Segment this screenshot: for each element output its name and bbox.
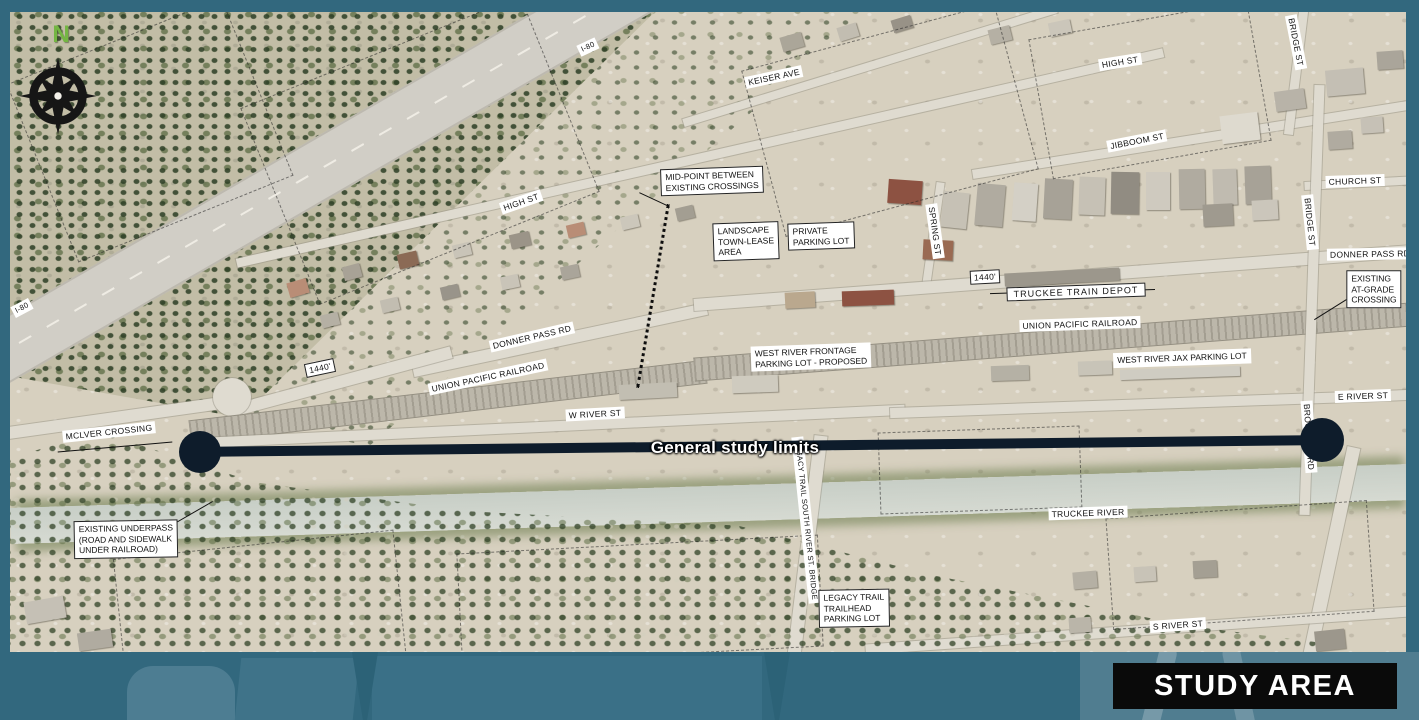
study-area-badge-label: STUDY AREA [1154,670,1356,703]
callout-line: PARKING LOT [793,235,850,247]
building [1111,172,1140,214]
building [1360,116,1383,133]
building [785,291,816,309]
parcel-outline [456,535,823,666]
study-area-map: I-80 I-80 KEISER AVE HIGH ST HIGH ST BRI… [0,0,1419,720]
building [380,297,400,314]
building [732,375,779,394]
footer-shape [235,658,360,720]
building [1120,366,1240,380]
frame-right [1406,0,1419,720]
building [940,191,970,230]
building [1179,169,1206,209]
compass-rose-icon [16,56,100,136]
callout-line: CROSSING [1351,294,1396,305]
street-label-e-river-st: E RIVER ST [1335,389,1392,403]
building [1244,166,1271,205]
building [440,284,460,301]
study-limit-endpoint-east [1300,418,1344,462]
north-label: N [52,21,69,49]
study-area-badge: STUDY AREA [1113,663,1397,709]
building [1376,50,1403,70]
measurement-1440-east: 1440' [970,269,1001,285]
street-label-church-st: CHURCH ST [1325,174,1384,188]
callout-line: AREA [718,245,774,257]
callout-line: LEGACY TRAIL [823,592,884,604]
building [1212,169,1237,206]
building [1274,88,1306,112]
building [77,629,113,652]
callout-line: PARKING LOT [824,613,885,625]
building [836,22,859,41]
parcel-outline [1105,500,1374,630]
footer-shape [127,666,235,720]
building [842,290,894,307]
building [779,32,804,52]
callout-legacy-trail-trailhead: LEGACY TRAIL TRAILHEAD PARKING LOT [818,589,889,628]
building [23,596,66,625]
callout-landscape-town-lease: LANDSCAPE TOWN-LEASE AREA [712,221,779,261]
building [286,278,309,298]
east-river-street-road [890,390,1410,418]
callout-private-parking-lot: PRIVATE PARKING LOT [787,221,854,250]
building [566,222,586,239]
study-limit-endpoint-west [179,431,221,473]
callout-line: WEST RIVER JAX PARKING LOT [1117,350,1247,365]
footer-shape [372,656,762,720]
footer-band: STUDY AREA [0,652,1419,720]
callout-line: EXISTING [1351,273,1396,284]
building [320,312,341,329]
callout-line: AT-GRADE [1351,284,1396,295]
building [974,183,1006,227]
building [1012,182,1039,222]
callout-line: TOWN-LEASE [718,235,774,247]
building [500,274,520,290]
building [1146,172,1170,210]
callout-existing-underpass: EXISTING UNDERPASS (ROAD AND SIDEWALK UN… [74,519,179,558]
building [619,382,678,400]
study-limits-label: General study limits [651,438,820,458]
building [1072,570,1097,589]
building [991,365,1030,381]
footer-shape [764,652,790,720]
frame-left [0,0,10,720]
callout-line: UNDER RAILROAD) [79,543,173,555]
building [1069,617,1092,633]
building [1327,130,1352,150]
building [509,231,532,249]
building [1325,67,1365,96]
frame-top [0,0,1419,12]
building [1078,177,1105,216]
building [620,214,640,231]
callout-existing-at-grade-crossing: EXISTING AT-GRADE CROSSING [1346,270,1401,308]
building [675,205,695,222]
roundabout [213,378,251,416]
building [560,264,580,280]
callout-west-river-frontage: WEST RIVER FRONTAGE PARKING LOT - PROPOS… [751,342,872,371]
callout-midpoint-between-crossings: MID-POINT BETWEEN EXISTING CROSSINGS [660,166,764,197]
building [1251,199,1278,220]
building [1043,178,1073,219]
building [1314,628,1346,651]
building [1202,203,1233,227]
building [1078,360,1112,375]
street-label-donner-pass-rd-east: DONNER PASS RD [1327,247,1413,261]
